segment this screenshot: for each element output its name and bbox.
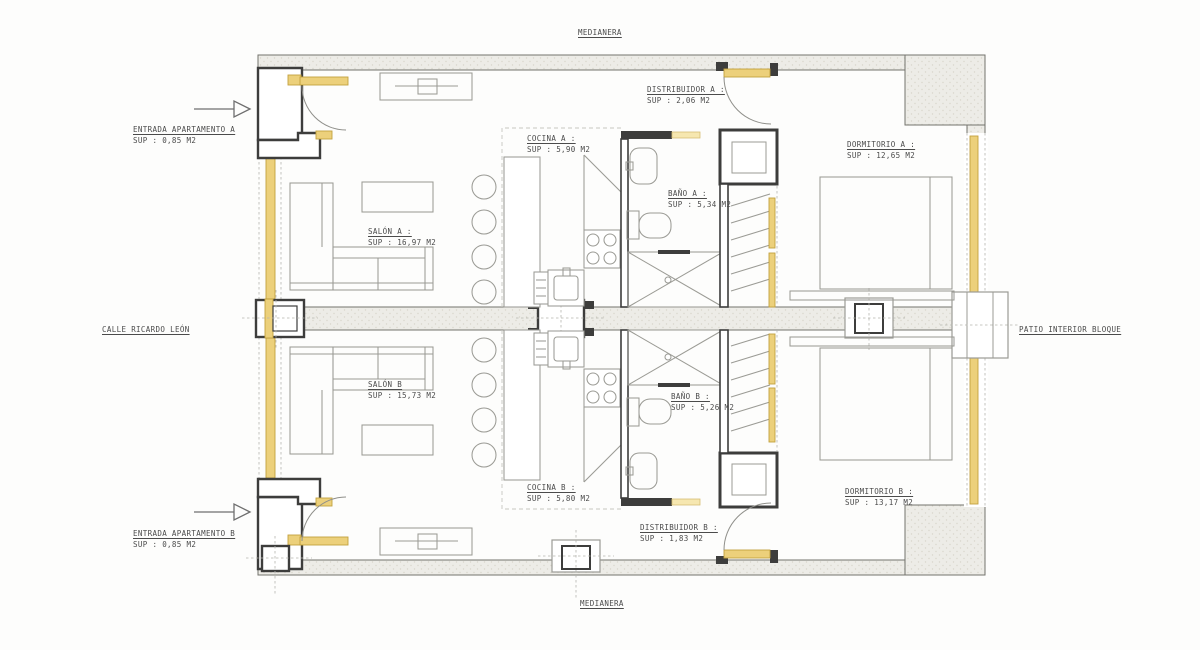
- entrance-name: ENTRADA APARTAMENTO A: [133, 124, 235, 135]
- bathroom-a: [621, 131, 723, 307]
- room-name: SALÓN B: [368, 379, 436, 390]
- toilet-a-bowl: [639, 213, 671, 238]
- door-leaf-distribuidor-b: [724, 550, 770, 558]
- room-label-distribuidor-b: DISTRIBUIDOR B : SUP : 1,83 M2: [640, 522, 718, 544]
- bed-a: [820, 177, 952, 289]
- room-label-dormitorio-b: DORMITORIO B : SUP : 13,17 M2: [845, 486, 913, 508]
- entrance-arrow-b: [194, 504, 250, 520]
- sink-b: [548, 331, 584, 367]
- toilet-b-bowl: [639, 399, 671, 424]
- side-table-a: [362, 182, 433, 212]
- room-area: SUP : 5,90 M2: [527, 144, 590, 155]
- room-area: SUP : 1,83 M2: [640, 533, 718, 544]
- room-name: DISTRIBUIDOR B :: [640, 522, 718, 533]
- label-entrada-a: ENTRADA APARTAMENTO A SUP : 0,85 M2: [133, 124, 235, 146]
- site-label-medianera-bottom: MEDIANERA: [580, 598, 624, 609]
- label-entrada-b: ENTRADA APARTAMENTO B SUP : 0,85 M2: [133, 528, 235, 550]
- room-area: SUP : 15,73 M2: [368, 390, 436, 401]
- bedroom-a: [790, 177, 954, 300]
- entrance-arrow-a: [194, 101, 250, 117]
- door-swing-distribuidor-b: [724, 503, 771, 550]
- bedroom-b: [790, 337, 954, 460]
- room-name: DISTRIBUIDOR A :: [647, 84, 725, 95]
- room-name: SALÓN A :: [368, 226, 436, 237]
- room-name: COCINA A :: [527, 133, 590, 144]
- washbasin-b: [630, 453, 657, 489]
- distribuidor-b-door: [716, 503, 778, 564]
- bathroom-b-door: [672, 499, 700, 505]
- sofa-b-vertical: [290, 347, 333, 454]
- shaft-b: [720, 453, 777, 507]
- site-label-calle: CALLE RICARDO LEÓN: [102, 324, 190, 335]
- room-name: BAÑO B :: [671, 391, 734, 402]
- room-label-dormitorio-a: DORMITORIO A : SUP : 12,65 M2: [847, 139, 915, 161]
- door-leaf-distribuidor-a: [724, 69, 770, 77]
- sofa-a-vertical: [290, 183, 333, 290]
- door-leaf-entrance-b: [300, 537, 348, 545]
- room-label-salon-b: SALÓN B SUP : 15,73 M2: [368, 379, 436, 401]
- room-area: SUP : 16,97 M2: [368, 237, 436, 248]
- entrance-area: SUP : 0,85 M2: [133, 539, 235, 550]
- bathroom-a-door: [672, 132, 700, 138]
- washbasin-a: [630, 148, 657, 184]
- door-swing-distribuidor-a: [724, 77, 771, 124]
- room-area: SUP : 13,17 M2: [845, 497, 913, 508]
- room-name: BAÑO A :: [668, 188, 731, 199]
- room-area: SUP : 5,80 M2: [527, 493, 590, 504]
- room-label-bano-b: BAÑO B : SUP : 5,26 M2: [671, 391, 734, 413]
- door-swing-entrance-a: [302, 86, 346, 130]
- room-label-salon-a: SALÓN A : SUP : 16,97 M2: [368, 226, 436, 248]
- room-name: DORMITORIO A :: [847, 139, 915, 150]
- site-label-medianera-top: MEDIANERA: [578, 27, 622, 38]
- side-table-b: [362, 425, 433, 455]
- site-label-patio: PATIO INTERIOR BLOQUE: [1019, 324, 1121, 335]
- room-area: SUP : 5,26 M2: [671, 402, 734, 413]
- shaft-a: [720, 130, 777, 184]
- window-highlight-right-b: [970, 346, 978, 504]
- room-label-distribuidor-a: DISTRIBUIDOR A : SUP : 2,06 M2: [647, 84, 725, 106]
- bathroom-b: [621, 330, 723, 506]
- bed-b: [820, 348, 952, 460]
- room-label-bano-a: BAÑO A : SUP : 5,34 M2: [668, 188, 731, 210]
- sofa-a-horizontal: [333, 247, 433, 290]
- room-name: DORMITORIO B :: [845, 486, 913, 497]
- room-area: SUP : 2,06 M2: [647, 95, 725, 106]
- window-highlight-right-a: [970, 136, 978, 300]
- room-label-cocina-a: COCINA A : SUP : 5,90 M2: [527, 133, 590, 155]
- entrance-name: ENTRADA APARTAMENTO B: [133, 528, 235, 539]
- distribuidor-a-door: [716, 62, 778, 124]
- door-leaf-entrance-a: [300, 77, 348, 85]
- sideboard-b: [380, 528, 472, 555]
- sideboard-a: [380, 73, 472, 100]
- room-area: SUP : 5,34 M2: [668, 199, 731, 210]
- chairs-b: [472, 338, 496, 467]
- floor-plan-canvas: MEDIANERA MEDIANERA CALLE RICARDO LEÓN P…: [0, 0, 1200, 650]
- entrance-area: SUP : 0,85 M2: [133, 135, 235, 146]
- room-name: COCINA B :: [527, 482, 590, 493]
- window-highlight-left-a: [266, 158, 275, 299]
- window-highlight-left-b: [266, 338, 275, 478]
- entrance-vestibule-a: [258, 68, 348, 158]
- room-area: SUP : 12,65 M2: [847, 150, 915, 161]
- room-label-cocina-b: COCINA B : SUP : 5,80 M2: [527, 482, 590, 504]
- sink-a: [548, 270, 584, 306]
- chairs-a: [472, 175, 496, 304]
- living-room-b: [290, 347, 433, 455]
